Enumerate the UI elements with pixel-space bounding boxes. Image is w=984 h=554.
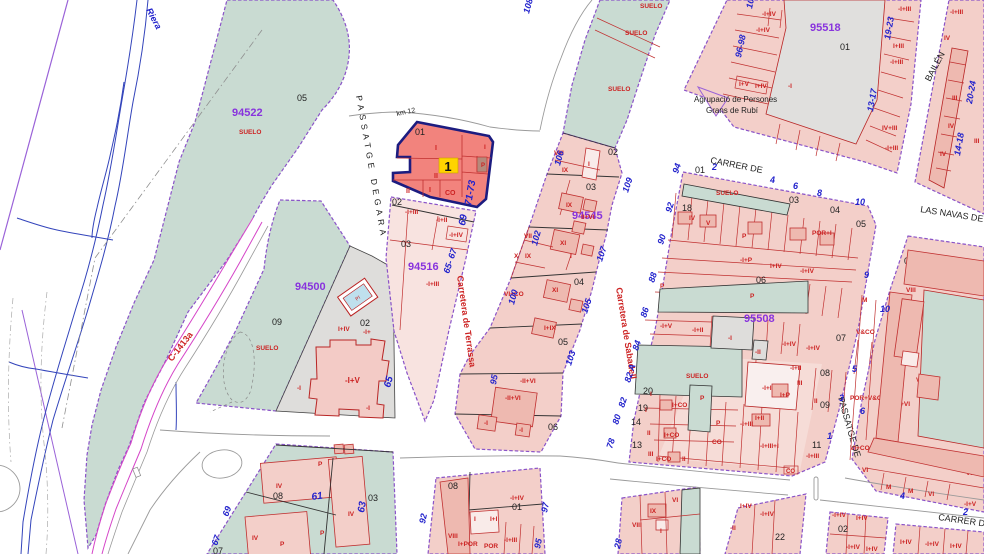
svg-text:I+POR: I+POR xyxy=(458,541,478,548)
svg-text:01: 01 xyxy=(695,165,705,175)
svg-text:01: 01 xyxy=(512,502,522,512)
svg-text:9: 9 xyxy=(864,270,869,280)
svg-text:P: P xyxy=(716,420,721,427)
svg-text:92: 92 xyxy=(417,513,429,525)
svg-text:-II: -II xyxy=(755,349,761,356)
svg-text:II: II xyxy=(814,398,818,405)
svg-text:-II+VI: -II+VI xyxy=(520,378,536,385)
svg-text:POR: POR xyxy=(484,543,498,550)
svg-text:8: 8 xyxy=(817,188,822,198)
svg-text:02: 02 xyxy=(392,197,402,207)
svg-text:-I+III: -I+III xyxy=(504,537,517,544)
svg-text:I+CO: I+CO xyxy=(656,456,671,463)
svg-text:I+CO: I+CO xyxy=(672,402,687,409)
svg-text:III: III xyxy=(648,451,654,458)
svg-text:I: I xyxy=(570,253,572,260)
svg-text:I+IV: I+IV xyxy=(950,543,962,550)
svg-text:08: 08 xyxy=(820,368,830,378)
svg-text:VIII: VIII xyxy=(448,533,458,540)
svg-text:95508: 95508 xyxy=(744,313,775,325)
svg-text:X: X xyxy=(514,253,519,260)
svg-text:I+III: I+III xyxy=(893,43,904,50)
svg-text:-I+III+I: -I+III+I xyxy=(760,443,779,450)
svg-text:I: I xyxy=(474,516,476,523)
svg-text:-I: -I xyxy=(366,405,370,412)
svg-text:-I+II: -I+II xyxy=(692,327,704,334)
svg-text:XI: XI xyxy=(552,287,558,294)
svg-text:CO: CO xyxy=(445,190,456,197)
svg-text:P: P xyxy=(660,283,665,290)
svg-text:-I+IV: -I+IV xyxy=(832,512,847,519)
svg-text:61: 61 xyxy=(311,490,324,503)
svg-text:IX: IX xyxy=(650,508,657,515)
svg-text:SUELO: SUELO xyxy=(239,129,261,136)
svg-text:01: 01 xyxy=(840,42,850,52)
svg-text:02: 02 xyxy=(608,147,618,157)
svg-text:4: 4 xyxy=(769,175,775,185)
svg-text:I: I xyxy=(650,391,652,398)
svg-text:P: P xyxy=(481,163,485,169)
svg-text:03: 03 xyxy=(368,493,378,503)
svg-text:IV: IV xyxy=(252,535,259,542)
svg-text:22: 22 xyxy=(775,532,785,542)
svg-text:03: 03 xyxy=(586,182,596,192)
svg-text:-I+III: -I+III xyxy=(405,209,418,216)
svg-text:-I+III: -I+III xyxy=(426,281,439,288)
svg-text:SUELO: SUELO xyxy=(686,373,708,380)
svg-text:SUELO: SUELO xyxy=(256,345,278,352)
svg-text:-I+IV: -I+IV xyxy=(760,511,775,518)
svg-text:I: I xyxy=(588,161,590,168)
svg-text:I+P: I+P xyxy=(780,392,791,399)
svg-text:-I: -I xyxy=(297,385,301,392)
svg-text:CO: CO xyxy=(786,469,795,475)
svg-text:06: 06 xyxy=(756,275,766,285)
svg-text:01: 01 xyxy=(415,127,425,137)
svg-text:-I+II: -I+II xyxy=(790,365,802,372)
svg-text:M: M xyxy=(886,484,891,491)
svg-text:-I: -I xyxy=(484,420,488,427)
svg-text:IV: IV xyxy=(940,151,947,158)
svg-text:II: II xyxy=(406,188,410,195)
svg-text:-I+III: -I+III xyxy=(885,145,898,152)
svg-text:II: II xyxy=(647,430,651,437)
svg-text:I+IV: I+IV xyxy=(755,83,767,90)
svg-text:P: P xyxy=(750,293,755,300)
svg-text:07: 07 xyxy=(213,546,223,554)
svg-text:III: III xyxy=(952,95,958,102)
svg-text:2: 2 xyxy=(711,162,717,172)
svg-text:08: 08 xyxy=(273,491,283,501)
svg-text:-I+III: -I+III xyxy=(950,9,963,16)
svg-text:I+IV: I+IV xyxy=(866,546,878,553)
svg-text:POR+I: POR+I xyxy=(812,230,832,237)
svg-text:-I+IV: -I+IV xyxy=(762,11,777,18)
svg-text:14: 14 xyxy=(631,417,641,427)
svg-text:I: I xyxy=(484,144,486,151)
svg-text:I: I xyxy=(435,145,437,152)
svg-text:-I: -I xyxy=(728,335,732,342)
svg-text:11: 11 xyxy=(812,440,821,450)
svg-text:04: 04 xyxy=(574,277,584,287)
svg-text:II+VI: II+VI xyxy=(581,214,595,221)
svg-text:10: 10 xyxy=(855,197,865,207)
svg-text:III: III xyxy=(797,380,803,387)
svg-text:07: 07 xyxy=(836,333,846,343)
svg-text:94522: 94522 xyxy=(232,107,263,119)
svg-text:-I+II: -I+II xyxy=(436,217,448,224)
svg-text:-I+IV: -I+IV xyxy=(449,232,464,239)
svg-text:II: II xyxy=(434,173,438,180)
svg-text:18: 18 xyxy=(682,203,692,213)
svg-text:I+V: I+V xyxy=(739,81,750,88)
svg-text:P: P xyxy=(700,395,705,402)
svg-text:-I: -I xyxy=(519,427,523,434)
svg-text:I+IV: I+IV xyxy=(770,263,782,270)
svg-text:II: II xyxy=(682,456,686,463)
svg-text:09: 09 xyxy=(272,317,282,327)
svg-text:-I+III: -I+III xyxy=(898,6,911,13)
svg-text:-I+IV: -I+IV xyxy=(756,27,771,34)
svg-text:-II+VI: -II+VI xyxy=(505,395,521,402)
svg-text:-I+V: -I+V xyxy=(660,323,673,330)
svg-text:IV: IV xyxy=(944,35,951,42)
svg-text:P: P xyxy=(742,233,747,240)
svg-text:I: I xyxy=(660,528,662,535)
svg-text:02: 02 xyxy=(838,524,848,534)
svg-text:I+IX: I+IX xyxy=(544,325,556,332)
svg-text:VI: VI xyxy=(928,491,934,498)
svg-text:Agrupació de Persones: Agrupació de Persones xyxy=(694,95,777,104)
svg-text:-I+III: -I+III xyxy=(740,421,753,428)
svg-text:09: 09 xyxy=(820,400,830,410)
svg-text:M: M xyxy=(908,488,913,495)
svg-text:IV: IV xyxy=(948,123,955,130)
svg-text:94516: 94516 xyxy=(408,261,439,273)
svg-text:-I+IV: -I+IV xyxy=(846,544,861,551)
svg-text:IX: IX xyxy=(525,253,532,260)
svg-text:I+IV: I+IV xyxy=(900,539,912,546)
svg-text:-I+V: -I+V xyxy=(345,376,361,385)
svg-text:P: P xyxy=(280,541,285,548)
svg-text:I+II: I+II xyxy=(755,415,764,422)
svg-text:IV: IV xyxy=(348,511,355,518)
svg-text:IV: IV xyxy=(689,215,696,222)
svg-text:SUELO: SUELO xyxy=(716,190,738,197)
svg-text:08: 08 xyxy=(448,481,458,491)
svg-text:VI+CO: VI+CO xyxy=(850,445,870,452)
svg-text:Grans de Rubí: Grans de Rubí xyxy=(706,106,759,115)
svg-text:95518: 95518 xyxy=(810,22,841,34)
svg-text:I: I xyxy=(429,187,431,194)
svg-text:III: III xyxy=(974,138,980,145)
svg-text:-I+III: -I+III xyxy=(890,59,903,66)
svg-text:P: P xyxy=(318,461,323,468)
svg-text:IV: IV xyxy=(276,483,283,490)
svg-text:-II: -II xyxy=(730,525,736,532)
svg-text:13: 13 xyxy=(632,440,642,450)
svg-text:03: 03 xyxy=(789,195,799,205)
svg-text:10: 10 xyxy=(880,304,890,314)
svg-text:1: 1 xyxy=(827,431,832,441)
svg-text:-I+III: -I+III xyxy=(806,453,819,460)
svg-text:I+IV: I+IV xyxy=(856,515,868,522)
svg-text:05: 05 xyxy=(856,219,866,229)
svg-text:2: 2 xyxy=(962,507,968,517)
svg-text:-I+IV: -I+IV xyxy=(925,541,940,548)
svg-text:SUELO: SUELO xyxy=(640,3,662,10)
svg-text:06: 06 xyxy=(548,422,558,432)
svg-text:-I+: -I+ xyxy=(363,329,371,336)
svg-text:I+IV: I+IV xyxy=(740,503,752,510)
svg-text:I: I xyxy=(645,407,647,414)
svg-text:VI: VI xyxy=(672,497,678,504)
svg-text:IX: IX xyxy=(562,167,569,174)
svg-text:-I+IV: -I+IV xyxy=(806,345,821,352)
svg-text:I+I: I+I xyxy=(490,516,498,523)
svg-text:3: 3 xyxy=(839,393,844,403)
svg-text:05: 05 xyxy=(558,337,568,347)
svg-text:SUELO: SUELO xyxy=(625,30,647,37)
svg-text:IV+III: IV+III xyxy=(882,125,898,132)
svg-text:-I+IV: -I+IV xyxy=(800,268,815,275)
svg-text:I+CO: I+CO xyxy=(664,432,679,439)
svg-text:-I+IV: -I+IV xyxy=(510,495,525,502)
svg-text:05: 05 xyxy=(297,93,307,103)
svg-text:94500: 94500 xyxy=(295,281,326,293)
svg-text:04: 04 xyxy=(830,205,840,215)
svg-text:IX: IX xyxy=(566,202,573,209)
svg-text:SUELO: SUELO xyxy=(608,86,630,93)
svg-text:-I+IV: -I+IV xyxy=(782,341,797,348)
svg-text:P: P xyxy=(320,530,325,537)
svg-text:CO: CO xyxy=(712,439,722,446)
svg-text:XI: XI xyxy=(560,240,566,247)
svg-text:VIII: VIII xyxy=(906,287,916,294)
svg-text:-I+I: -I+I xyxy=(762,385,772,392)
svg-text:-I: -I xyxy=(788,83,792,90)
svg-text:V: V xyxy=(706,220,711,227)
svg-text:1: 1 xyxy=(444,159,451,174)
svg-text:I+IV: I+IV xyxy=(338,326,350,333)
svg-text:02: 02 xyxy=(360,318,370,328)
svg-text:4: 4 xyxy=(899,491,905,501)
svg-text:-I+P: -I+P xyxy=(740,257,753,264)
svg-text:03: 03 xyxy=(401,239,411,249)
svg-text:M: M xyxy=(862,297,867,304)
svg-text:VIII: VIII xyxy=(632,522,642,529)
